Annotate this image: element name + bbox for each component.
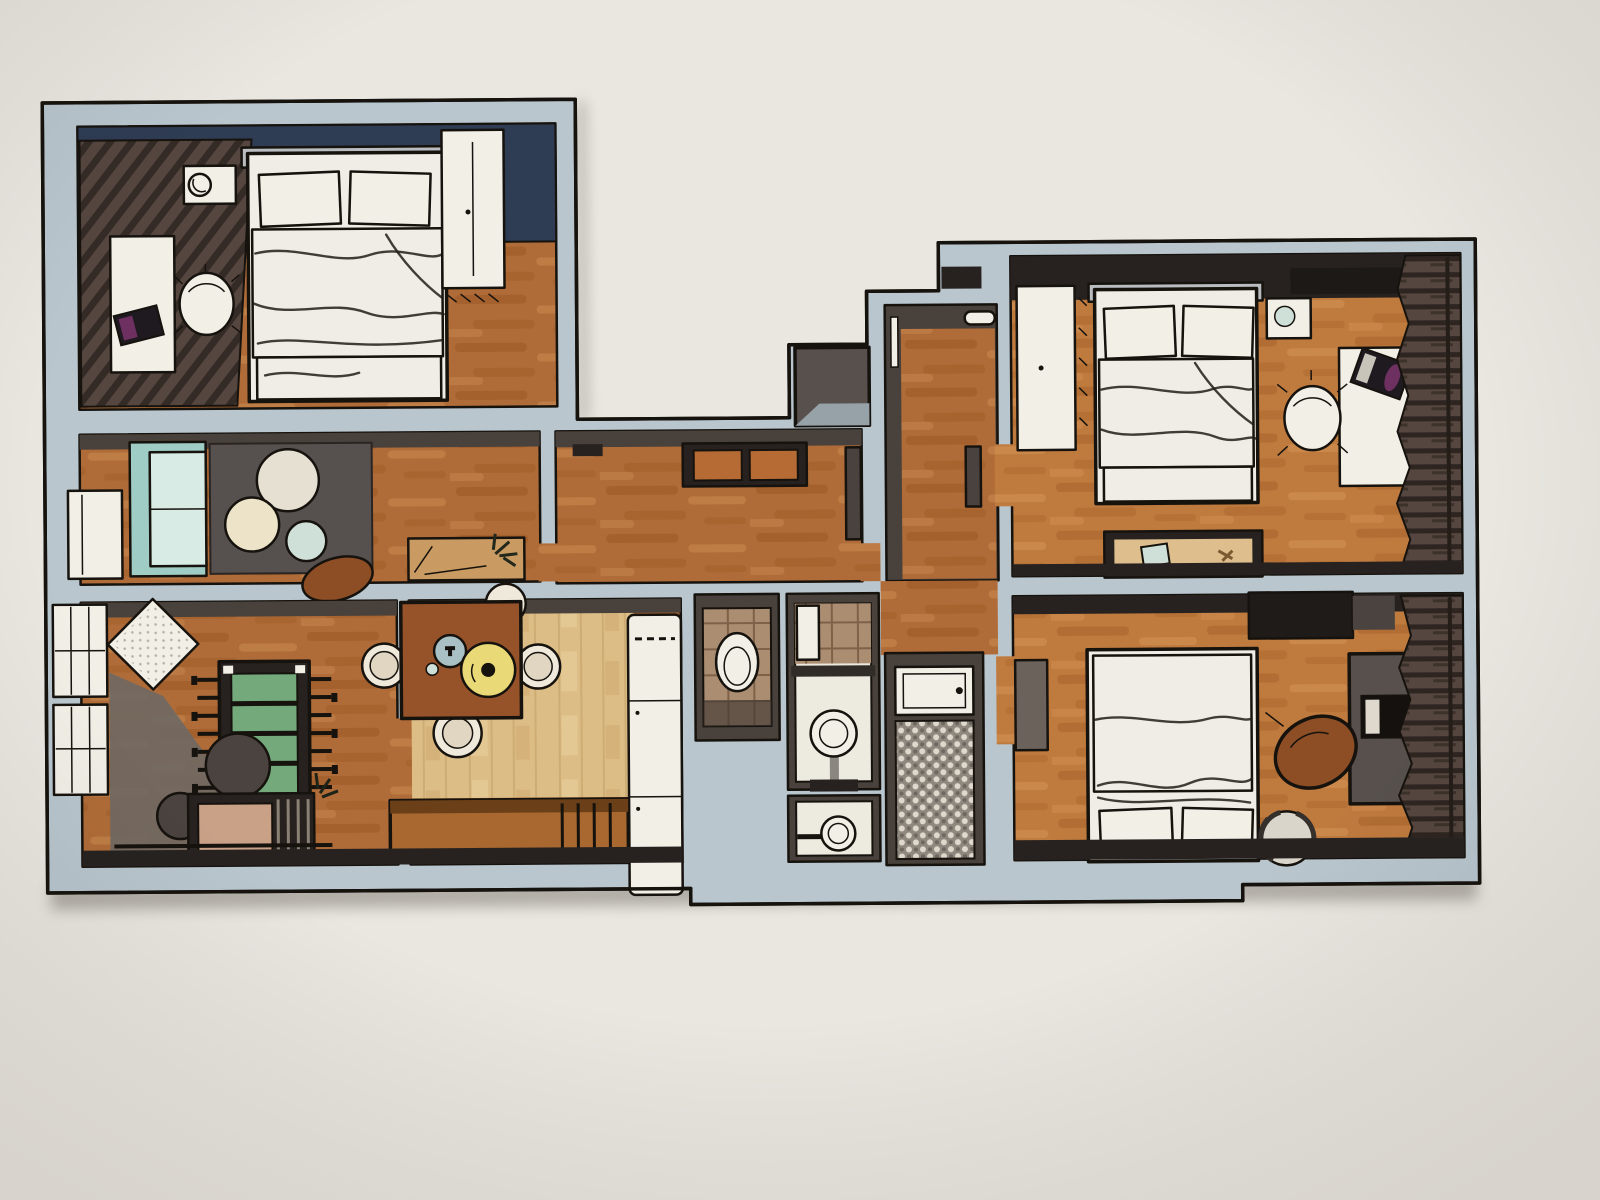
photo-vignette: [0, 0, 1600, 1200]
floor-plan-canvas: [0, 0, 1600, 1200]
floor-plan-photo: [0, 0, 1600, 1200]
